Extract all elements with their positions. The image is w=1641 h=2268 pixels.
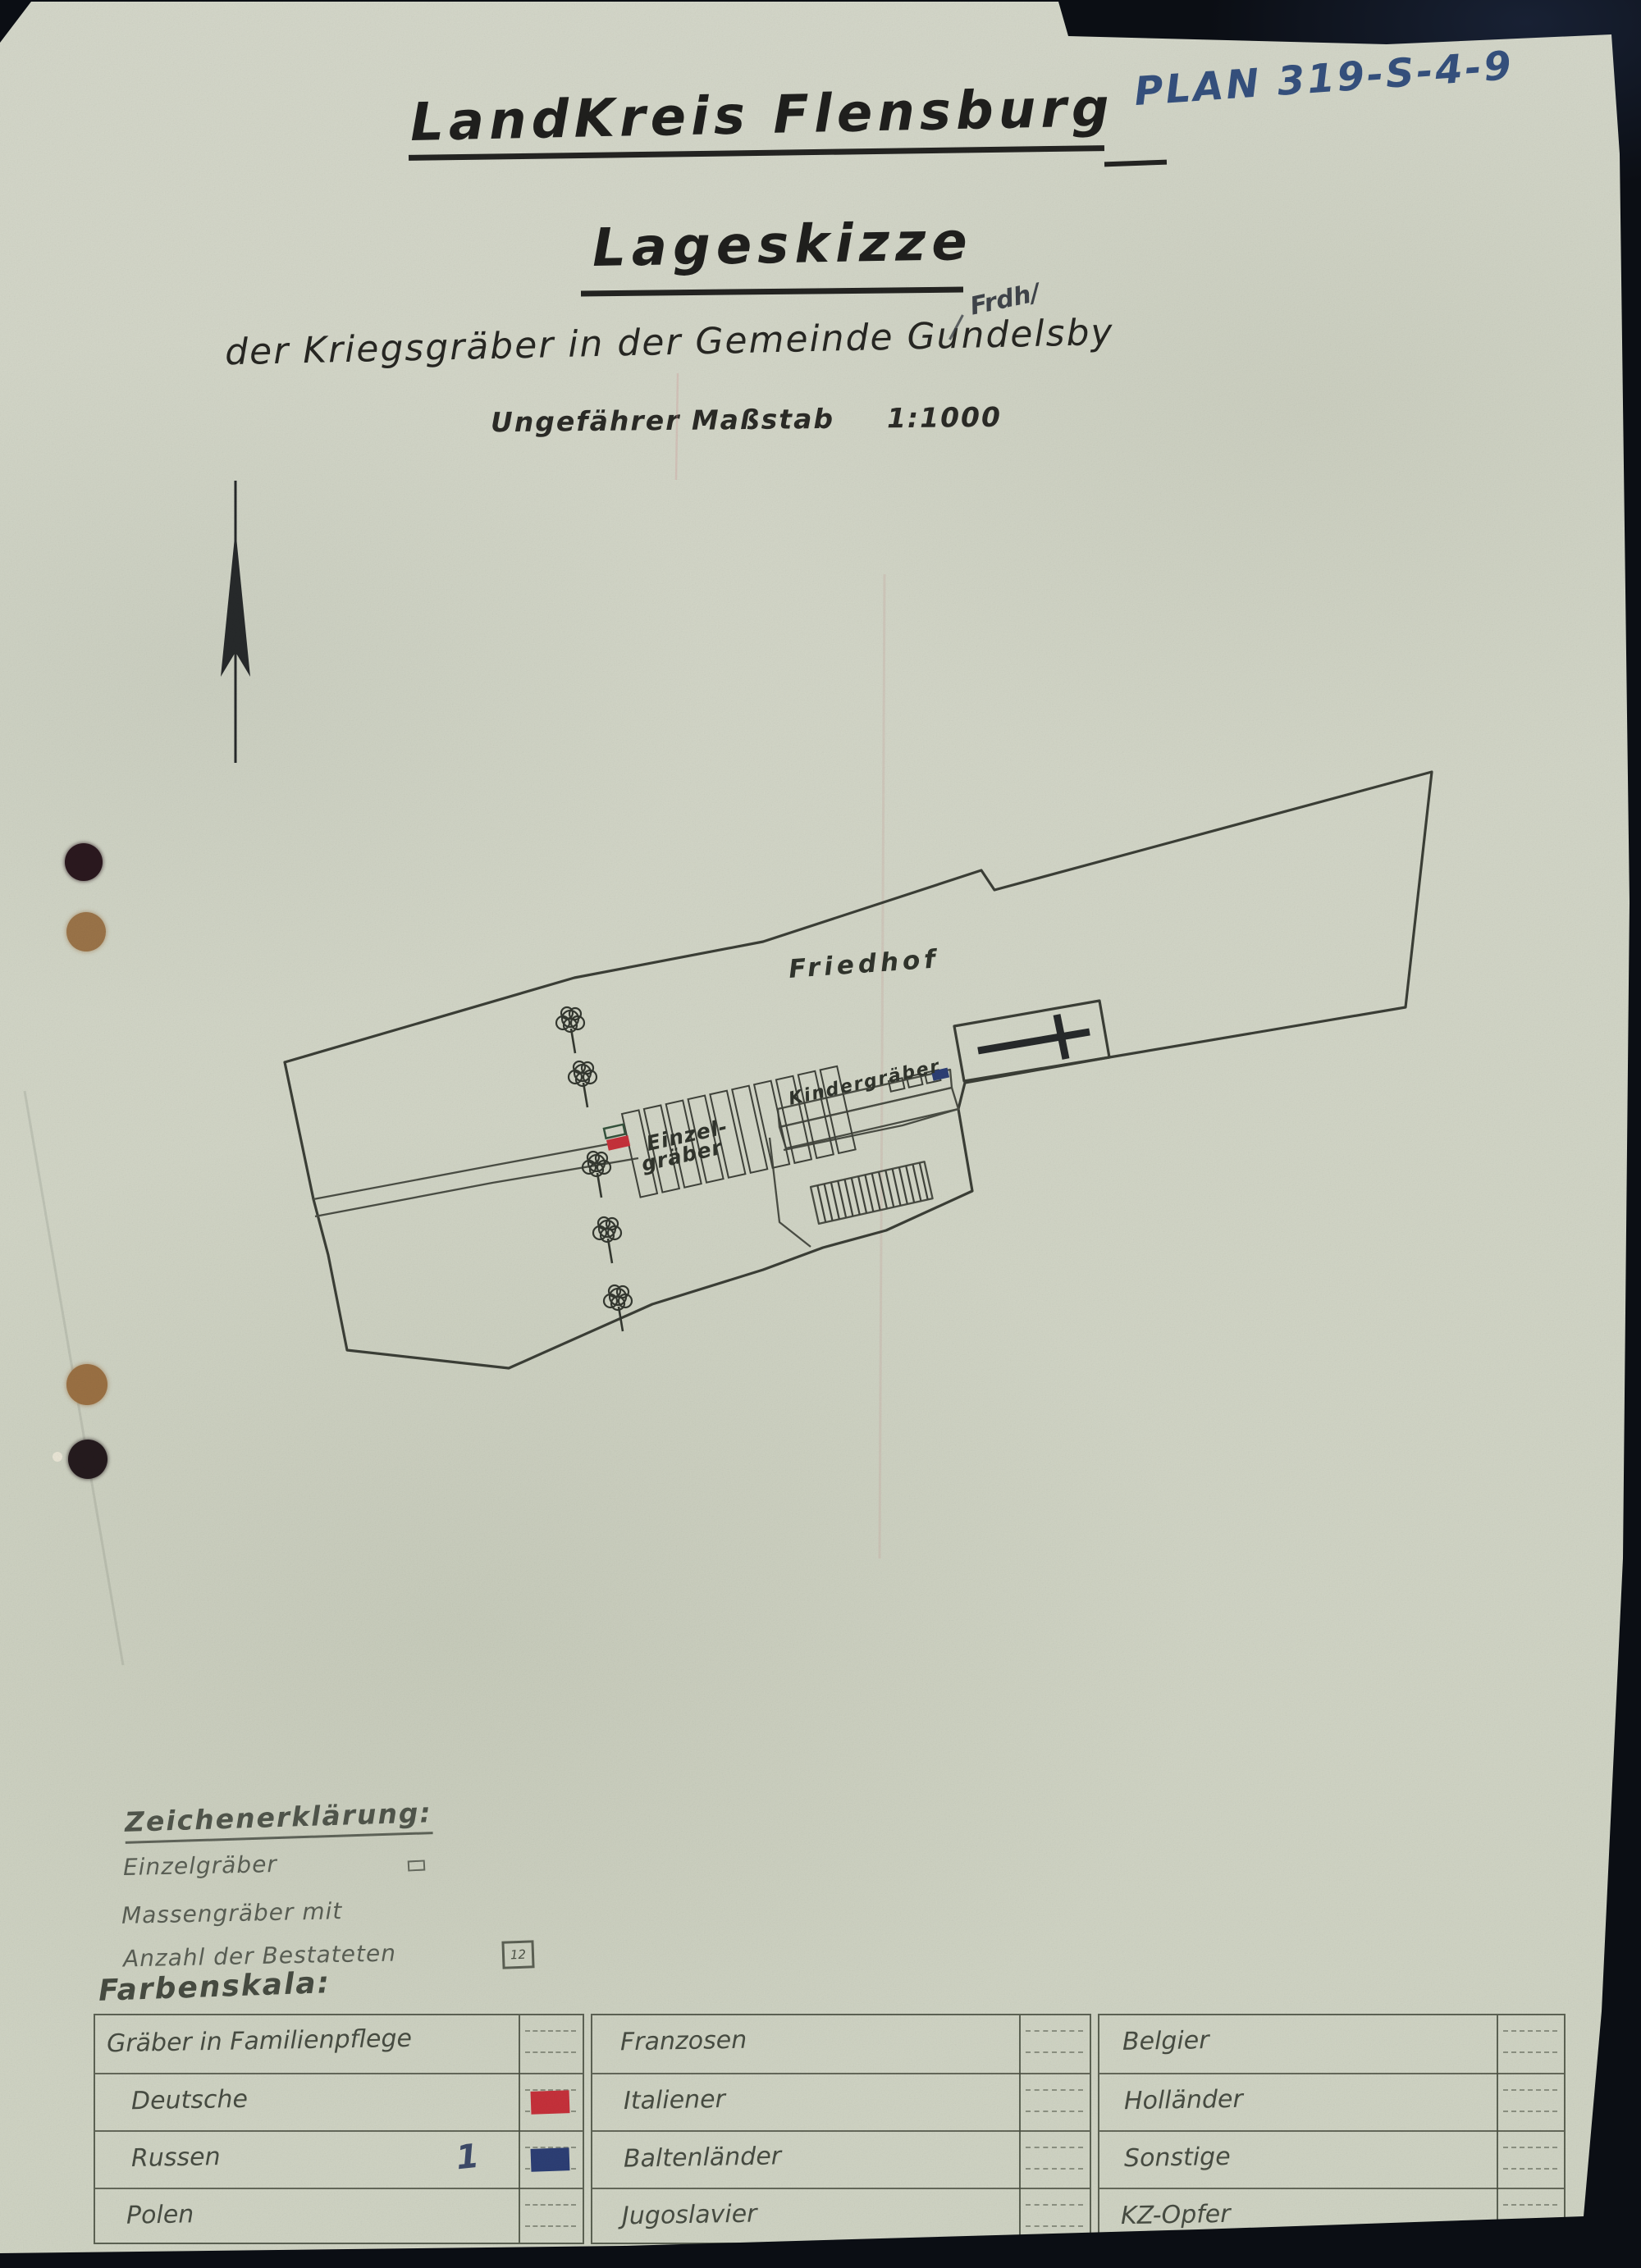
color-chip xyxy=(531,2090,570,2115)
scale-row-label: Deutsche xyxy=(131,2085,249,2115)
memorial-cross-horizontal xyxy=(978,1032,1090,1051)
color-cell-dash xyxy=(1503,2089,1557,2091)
table-row: Gräber in Familienpflege xyxy=(95,2015,583,2073)
scale-row-label: Sonstige xyxy=(1124,2143,1231,2173)
scale-row-label: Baltenländer xyxy=(624,2142,782,2173)
site-plan-drawing: FriedhofKindergräberEinzel-gräber xyxy=(0,0,1641,2268)
color-cell-dash xyxy=(1503,2225,1557,2227)
table-row: Polen xyxy=(95,2188,583,2246)
tree-symbol-2 xyxy=(583,1152,610,1198)
color-scale-section-0: Gräber in FamilienpflegeDeutscheRussen1P… xyxy=(94,2014,584,2244)
color-cell-dash xyxy=(525,2051,576,2053)
table-row: Deutsche xyxy=(95,2073,583,2130)
tree-symbol-1 xyxy=(569,1061,597,1107)
scale-row-label: Jugoslavier xyxy=(622,2200,757,2231)
table-row: Franzosen xyxy=(592,2015,1090,2073)
color-cell-dash xyxy=(1026,2089,1083,2091)
kindergraeber-label: Kindergräber xyxy=(787,1056,943,1110)
scale-row-label: Gräber in Familienpflege xyxy=(107,2024,413,2058)
color-cell-dash xyxy=(1503,2051,1557,2053)
paper-speck xyxy=(53,1452,62,1462)
table-row: Russen1 xyxy=(95,2130,583,2188)
paper-crease-small xyxy=(676,373,678,480)
paper-crease-vertical xyxy=(880,574,884,1558)
hatched-area xyxy=(811,1161,933,1224)
color-cell-dash xyxy=(1503,2204,1557,2206)
table-row: Belgier xyxy=(1099,2015,1564,2073)
scanned-document: LandKreis Flensburg PLAN 319-S-4-9 Lages… xyxy=(0,0,1641,2268)
color-cell-dash xyxy=(1026,2204,1083,2206)
color-cell-dash xyxy=(1503,2147,1557,2148)
scale-row-label: Belgier xyxy=(1122,2026,1209,2056)
paper-sheet: LandKreis Flensburg PLAN 319-S-4-9 Lages… xyxy=(0,0,1641,2268)
legend-item-anzahl: Anzahl der Bestateten xyxy=(123,1940,397,1973)
table-row: KZ-Opfer xyxy=(1099,2188,1564,2246)
memorial-cross-vertical xyxy=(1057,1015,1066,1059)
punch-hole-brown-top xyxy=(66,912,106,951)
scale-row-label: Italiener xyxy=(624,2085,726,2115)
table-row: Jugoslavier xyxy=(592,2188,1090,2246)
color-cell-dash xyxy=(1026,2111,1083,2112)
grave-count: 1 xyxy=(455,2138,481,2178)
color-cell-dash xyxy=(1026,2225,1083,2227)
color-cell-dash xyxy=(525,2204,576,2206)
color-cell-dash xyxy=(1503,2111,1557,2112)
color-scale-section-1: FranzosenItalienerBaltenländerJugoslavie… xyxy=(591,2014,1091,2244)
single-grave-symbol xyxy=(408,1860,426,1871)
path-line-3 xyxy=(770,1138,811,1247)
path-line-0 xyxy=(313,1142,621,1199)
friedhof-label: Friedhof xyxy=(788,944,940,984)
punch-hole-dark-top xyxy=(65,843,103,881)
legend-item-einzelgraeber: Einzelgräber xyxy=(123,1850,278,1881)
burial-count-box: 12 xyxy=(501,1940,534,1969)
table-row: Italiener xyxy=(592,2073,1090,2130)
tree-symbol-0 xyxy=(556,1007,584,1053)
color-cell-dash xyxy=(525,2030,576,2032)
tree-symbol-3 xyxy=(593,1217,621,1263)
color-cell-dash xyxy=(525,2225,576,2227)
scale-row-label: Polen xyxy=(126,2200,194,2229)
color-cell-dash xyxy=(1026,2030,1083,2032)
legend-item-massengraeber: Massengräber mit xyxy=(121,1897,343,1929)
punch-hole-dark-bottom xyxy=(68,1440,107,1479)
scale-row-label: Russen xyxy=(131,2143,221,2173)
punch-hole-brown-bottom xyxy=(66,1364,107,1405)
table-row: Sonstige xyxy=(1099,2130,1564,2188)
color-scale-section-2: BelgierHolländerSonstigeKZ-Opfer xyxy=(1098,2014,1566,2244)
scale-row-label: KZ-Opfer xyxy=(1121,2200,1231,2230)
color-cell-dash xyxy=(1026,2147,1083,2148)
table-row: Holländer xyxy=(1099,2073,1564,2130)
color-cell-dash xyxy=(1026,2051,1083,2053)
scale-row-label: Franzosen xyxy=(620,2026,747,2057)
scale-row-label: Holländer xyxy=(1124,2085,1243,2116)
color-cell-dash xyxy=(1503,2030,1557,2032)
color-cell-dash xyxy=(1026,2168,1083,2170)
table-row: Baltenländer xyxy=(592,2130,1090,2188)
color-cell-dash xyxy=(1503,2168,1557,2170)
grave-marker-outline xyxy=(604,1125,625,1139)
cemetery-boundary xyxy=(285,772,1432,1368)
color-chip xyxy=(531,2147,570,2172)
